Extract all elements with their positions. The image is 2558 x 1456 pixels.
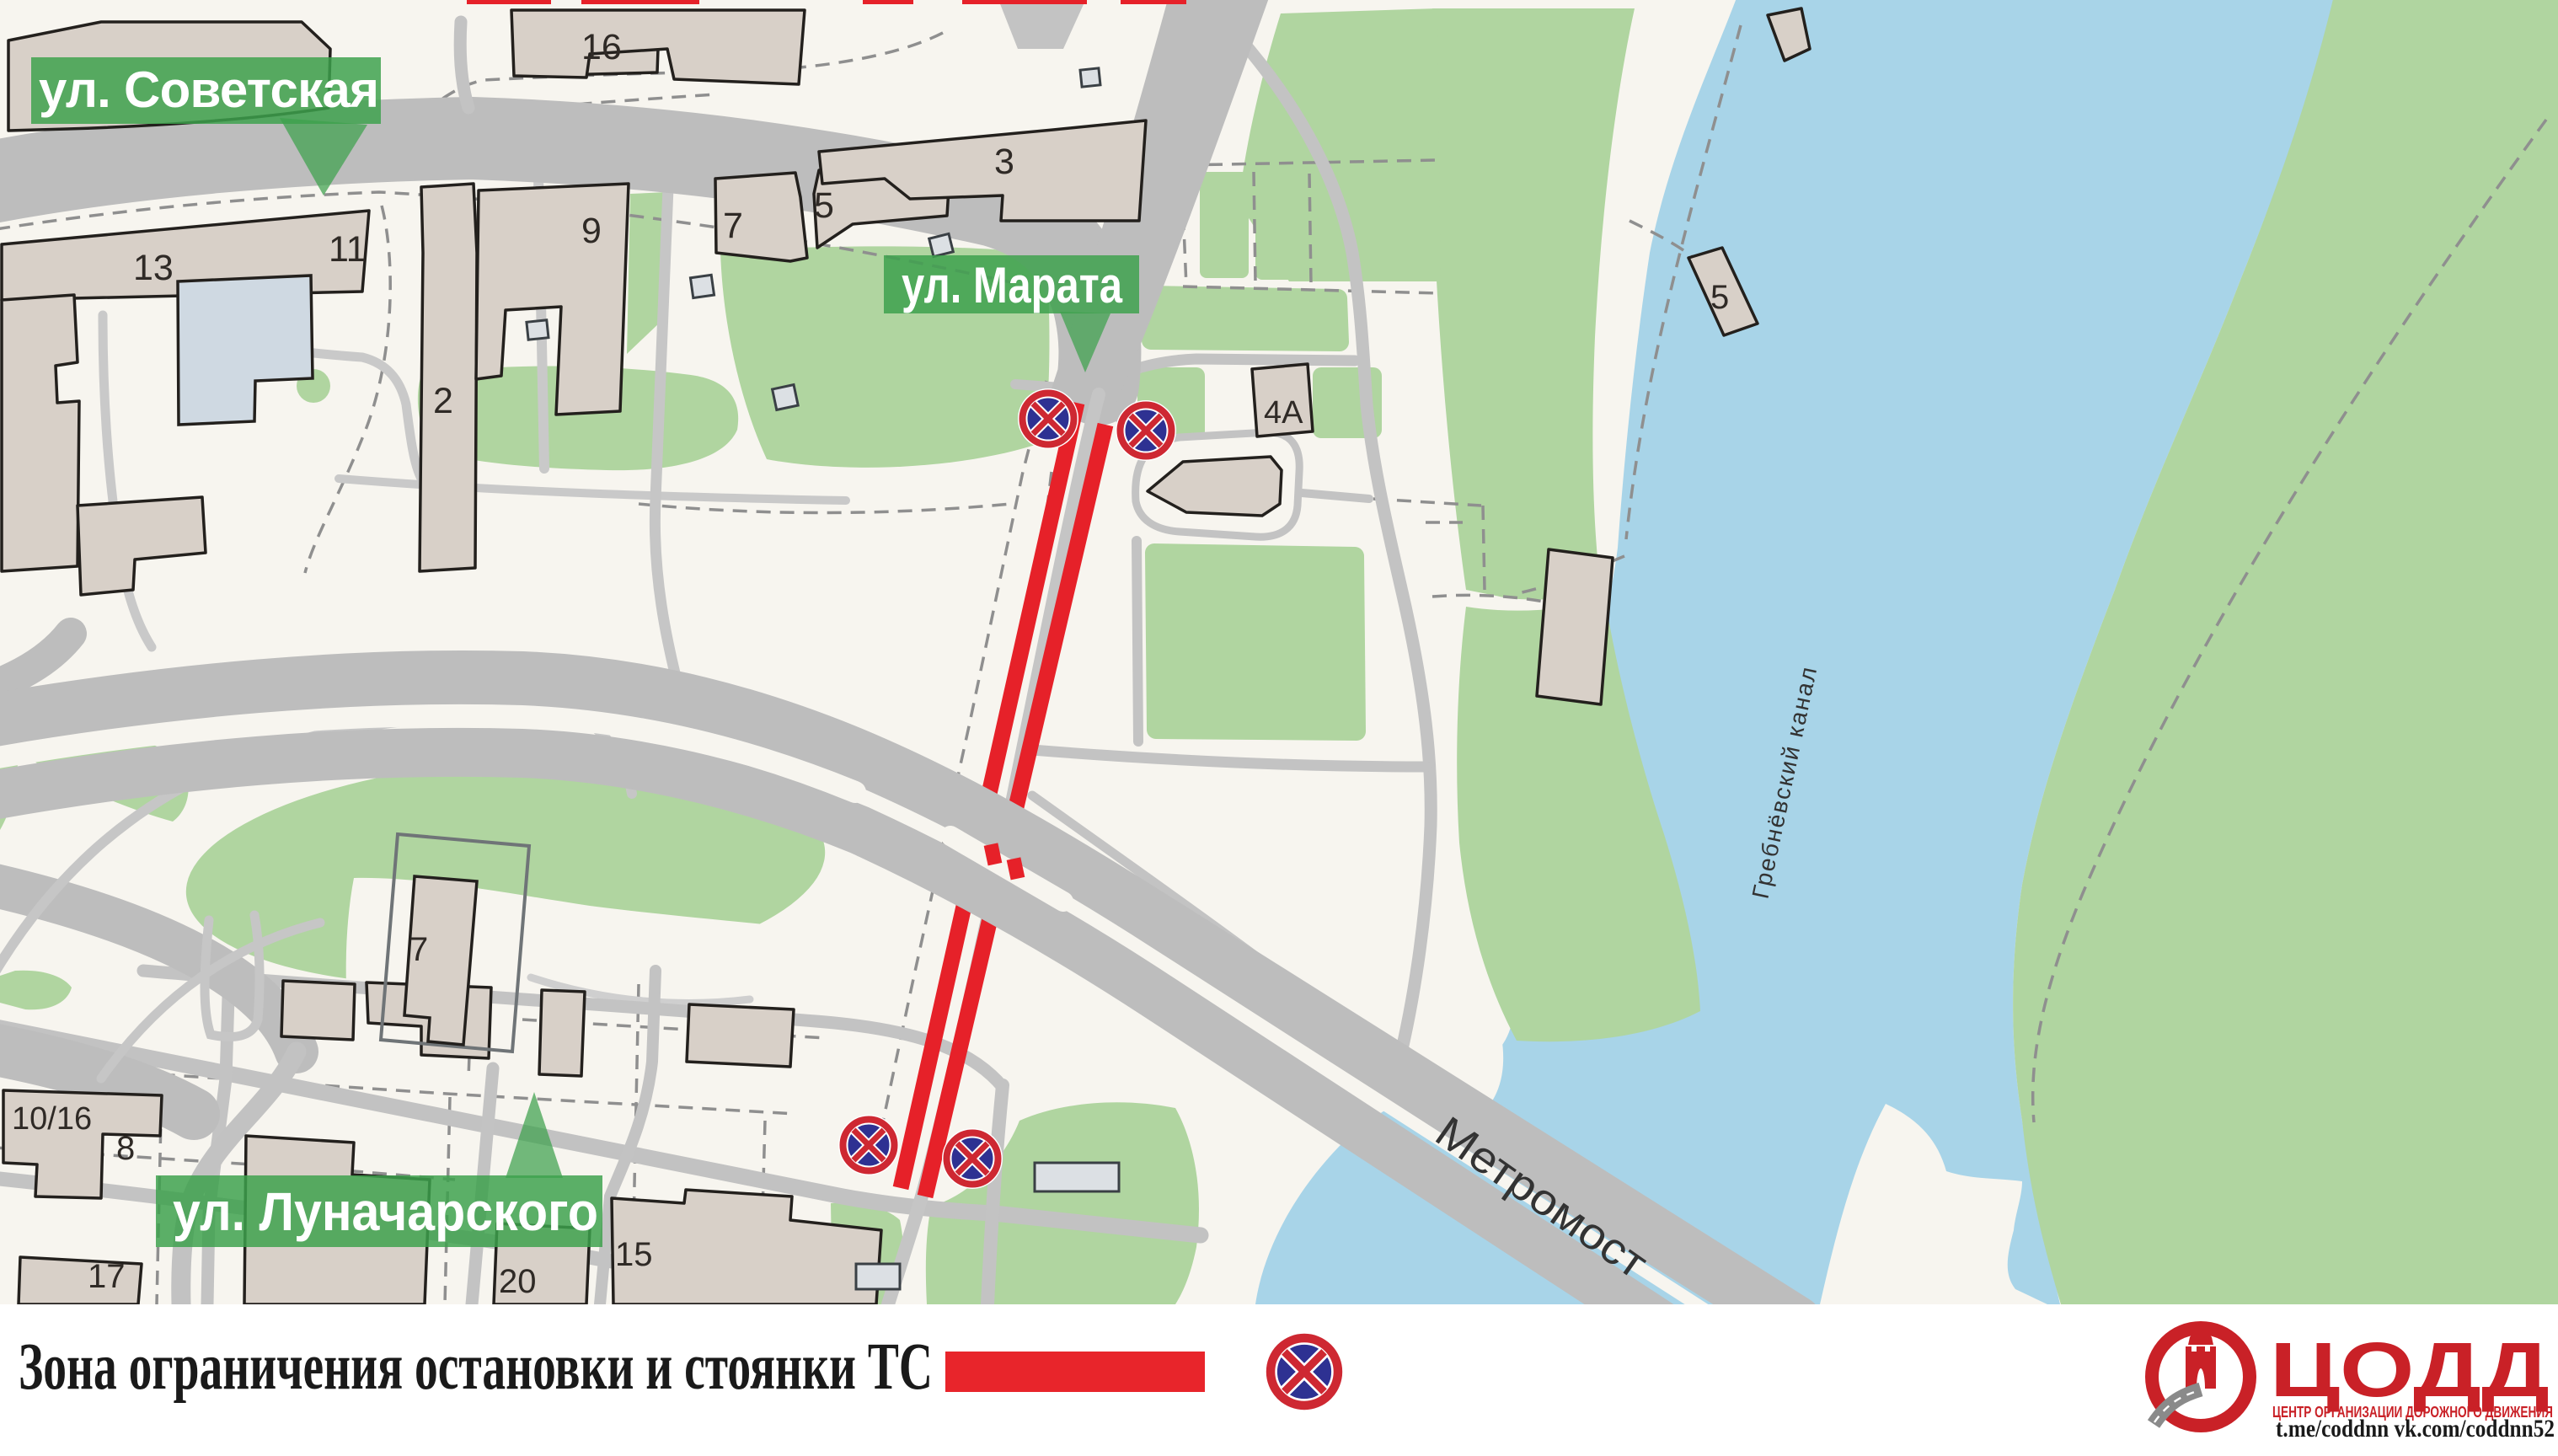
- svg-text:10/16: 10/16: [12, 1101, 92, 1137]
- svg-text:ул. Луначарского: ул. Луначарского: [173, 1181, 598, 1242]
- svg-text:4А: 4А: [1264, 395, 1303, 431]
- svg-text:ЦОДД: ЦОДД: [2270, 1327, 2550, 1413]
- svg-text:7: 7: [409, 931, 428, 968]
- svg-text:15: 15: [615, 1236, 653, 1273]
- svg-text:20: 20: [499, 1263, 537, 1300]
- svg-text:9: 9: [581, 211, 602, 251]
- svg-text:Зона ограничения остановки и с: Зона ограничения остановки и стоянки ТС: [19, 1330, 933, 1404]
- svg-text:11: 11: [329, 229, 367, 270]
- svg-text:2: 2: [433, 381, 453, 421]
- svg-text:t.me/coddnn vk.com/coddnn52: t.me/coddnn vk.com/coddnn52: [2276, 1415, 2555, 1443]
- svg-text:5: 5: [1710, 279, 1729, 316]
- svg-text:7: 7: [723, 206, 743, 246]
- svg-text:8: 8: [116, 1130, 135, 1167]
- svg-text:16: 16: [581, 27, 622, 67]
- svg-text:13: 13: [133, 248, 174, 288]
- svg-text:5: 5: [814, 185, 834, 226]
- svg-text:ул. Советская: ул. Советская: [39, 62, 379, 118]
- svg-text:3: 3: [994, 142, 1014, 182]
- svg-text:ул. Марата: ул. Марата: [902, 257, 1123, 313]
- svg-text:17: 17: [88, 1258, 126, 1295]
